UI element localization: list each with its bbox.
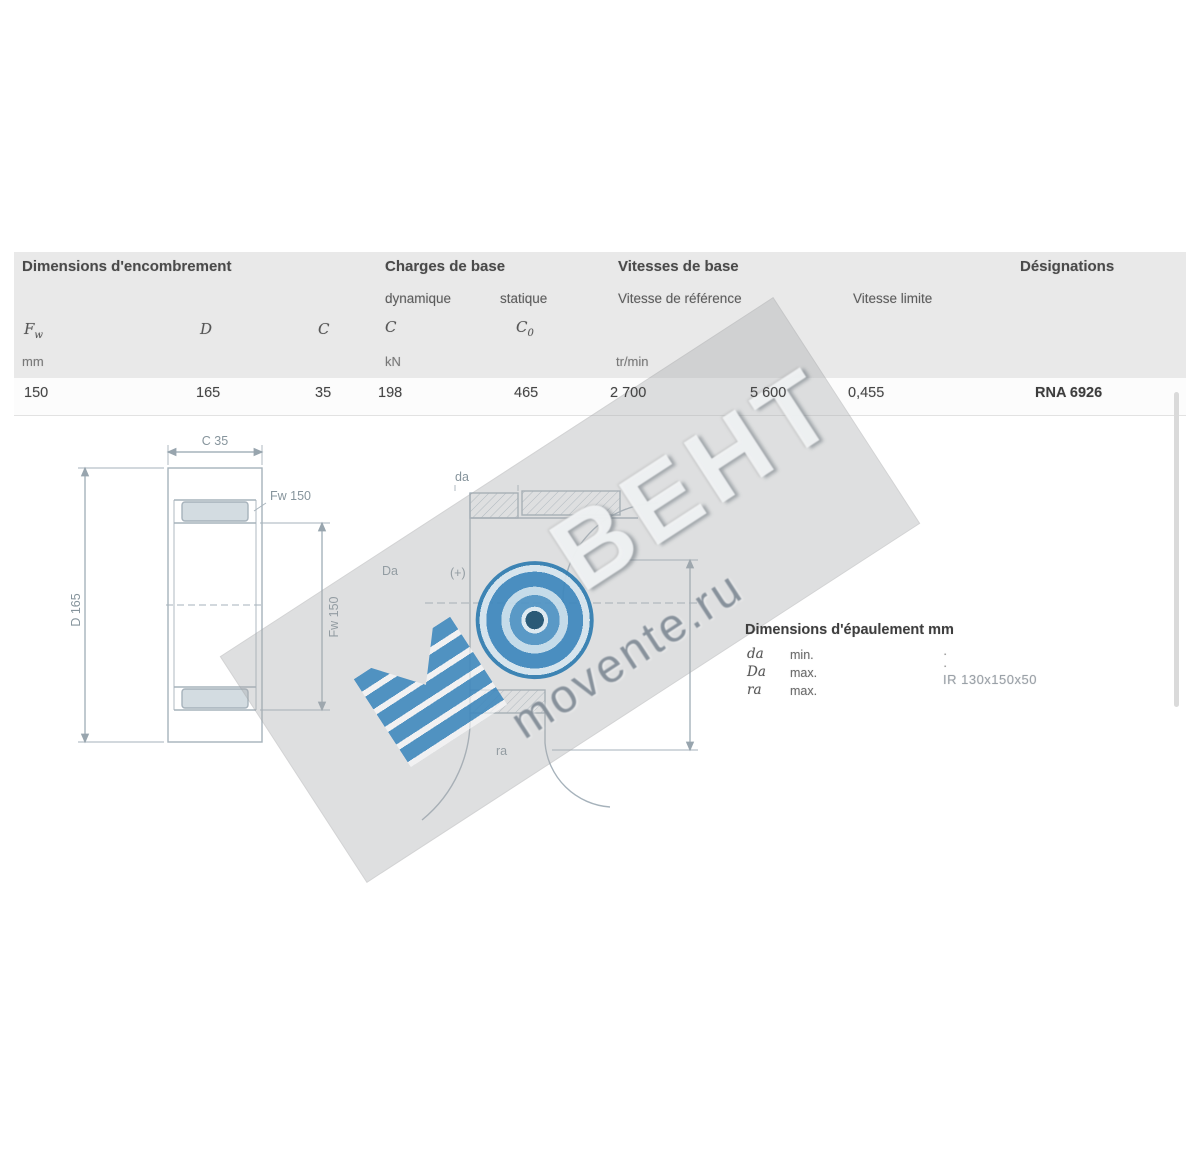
symbol-c0-main: C [516, 318, 527, 336]
cell-c0-static: 465 [514, 385, 538, 401]
details-row3-qualifier: max. [790, 684, 817, 698]
datasheet-page: Dimensions d'encombrement Charges de bas… [0, 0, 1200, 1165]
symbol-c0-sub: 0 [527, 328, 533, 339]
unit-rpm: tr/min [616, 354, 649, 369]
symbol-c: C [318, 320, 329, 338]
unit-kn: kN [385, 354, 401, 369]
column-group-dimensions: Dimensions d'encombrement [22, 258, 231, 275]
subheader-static: statique [500, 291, 547, 306]
column-group-loads: Charges de base [385, 258, 505, 275]
subheader-dynamic: dynamique [385, 291, 451, 306]
symbol-c-dynamic-main: C [385, 318, 396, 336]
symbol-fw-sub: w [34, 330, 43, 341]
symbol-c-main: C [318, 320, 329, 338]
symbol-d: D [200, 320, 212, 338]
dimension-label-d: D 165 [70, 593, 83, 626]
subheader-reference-speed: Vitesse de référence [618, 291, 742, 306]
details-row3-symbol: ra [747, 682, 762, 698]
symbol-d-main: D [200, 320, 212, 338]
symbol-fw-main: F [24, 320, 34, 338]
details-row2-value: · [943, 658, 947, 673]
cell-designation: RNA 6926 [1035, 385, 1102, 401]
column-group-designations: Désignations [1020, 258, 1114, 275]
symbol-c0-static: C0 [516, 318, 534, 339]
cell-reference-speed: 2 700 [610, 385, 646, 401]
details-row1-symbol: da [747, 646, 764, 662]
details-row2-symbol: Da [747, 664, 766, 680]
related-inner-ring-text: IR 130x150x50 [943, 672, 1037, 687]
cell-mass: 0,455 [848, 385, 884, 401]
symbol-c-dynamic: C [385, 318, 396, 336]
unit-mm: mm [22, 354, 44, 369]
cell-c: 35 [315, 385, 331, 401]
cell-limiting-speed: 5 600 [750, 385, 786, 401]
cell-c-dynamic: 198 [378, 385, 402, 401]
subheader-limiting-speed: Vitesse limite [853, 291, 932, 306]
cell-d: 165 [196, 385, 220, 401]
details-row2-qualifier: max. [790, 666, 817, 680]
dimension-note-fw: Fw 150 [270, 489, 311, 503]
details-heading: Dimensions d'épaulement mm [745, 622, 954, 638]
cell-fw: 150 [24, 385, 48, 401]
label-da: da [455, 470, 469, 484]
column-group-speeds: Vitesses de base [618, 258, 739, 275]
dimension-label-c: C 35 [202, 434, 228, 448]
details-row1-qualifier: min. [790, 648, 814, 662]
symbol-fw: Fw [24, 320, 43, 341]
scrollbar-thumb[interactable] [1174, 392, 1179, 707]
